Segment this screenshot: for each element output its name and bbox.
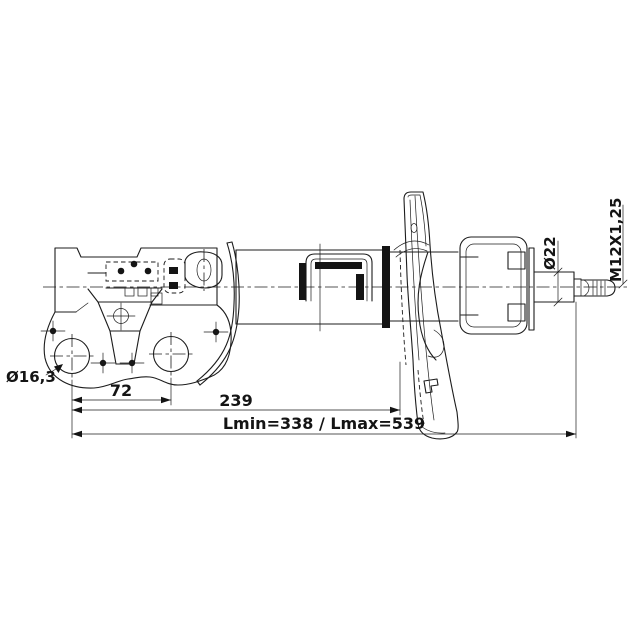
mount-square1 xyxy=(169,267,178,274)
label-mount-to-seat: 239 xyxy=(219,391,252,410)
cup-hole-top xyxy=(508,252,525,269)
clamp-bar-right xyxy=(356,274,364,300)
rivet-dot2 xyxy=(131,261,138,268)
bump-stop-cup xyxy=(460,237,534,334)
strut-technical-drawing: 72 239 Lmin=338 / Lmax=539 Ø16,3 Ø22 xyxy=(0,0,640,640)
label-hole-diameter: Ø16,3 xyxy=(6,368,56,386)
drawing-canvas: 72 239 Lmin=338 / Lmax=539 Ø16,3 Ø22 xyxy=(0,0,640,640)
bracket-edge4 xyxy=(76,303,88,312)
cross-marker xyxy=(91,353,115,373)
arrow-left xyxy=(72,431,82,437)
seat-small-hole xyxy=(411,224,417,233)
cross-marker xyxy=(204,322,228,342)
thread-chamfer xyxy=(584,280,589,296)
mount-square2 xyxy=(169,282,178,289)
label-thread: M12X1,25 xyxy=(607,198,625,282)
callout-thread: M12X1,25 xyxy=(607,198,627,288)
bump-stop-arc2 xyxy=(396,249,427,257)
cross-marker xyxy=(41,321,65,341)
cross-marker xyxy=(120,353,144,373)
comb-tooth2 xyxy=(138,288,147,296)
end-plate xyxy=(529,248,534,330)
arrow-right xyxy=(390,407,400,413)
callout-hole-diameter: Ø16,3 xyxy=(6,364,63,386)
seat-foot-line xyxy=(422,427,445,433)
knuckle-bracket xyxy=(41,242,239,388)
arrow-right xyxy=(566,431,576,437)
callout-rod-diameter: Ø22 xyxy=(541,236,562,306)
arrow-left xyxy=(72,397,82,403)
arrow-left xyxy=(72,407,82,413)
spring-seat xyxy=(400,192,458,439)
rivet-dot1 xyxy=(118,268,125,275)
step-detail xyxy=(151,293,162,304)
comb-tooth1 xyxy=(125,288,134,296)
cup-hole-bottom xyxy=(508,304,525,321)
clamp-bar-left xyxy=(299,263,306,300)
cross-markers xyxy=(41,321,228,373)
arrow-right xyxy=(161,397,171,403)
seat-ring xyxy=(382,246,390,328)
seat-cutout xyxy=(424,379,438,393)
dimension-length-range: Lmin=338 / Lmax=539 xyxy=(72,414,576,437)
dimension-72: 72 xyxy=(72,381,171,403)
flange-outer xyxy=(197,243,234,381)
seat-hidden1 xyxy=(400,250,406,365)
rivet-dot3 xyxy=(145,268,152,275)
hose-clamp xyxy=(299,254,372,301)
clamp-bar-top xyxy=(315,262,362,269)
seat-press-curve xyxy=(418,252,436,360)
label-length-range: Lmin=338 / Lmax=539 xyxy=(223,414,425,433)
label-hole-spacing: 72 xyxy=(110,381,132,400)
seat-outline xyxy=(404,192,458,439)
label-rod-diameter: Ø22 xyxy=(541,236,559,270)
